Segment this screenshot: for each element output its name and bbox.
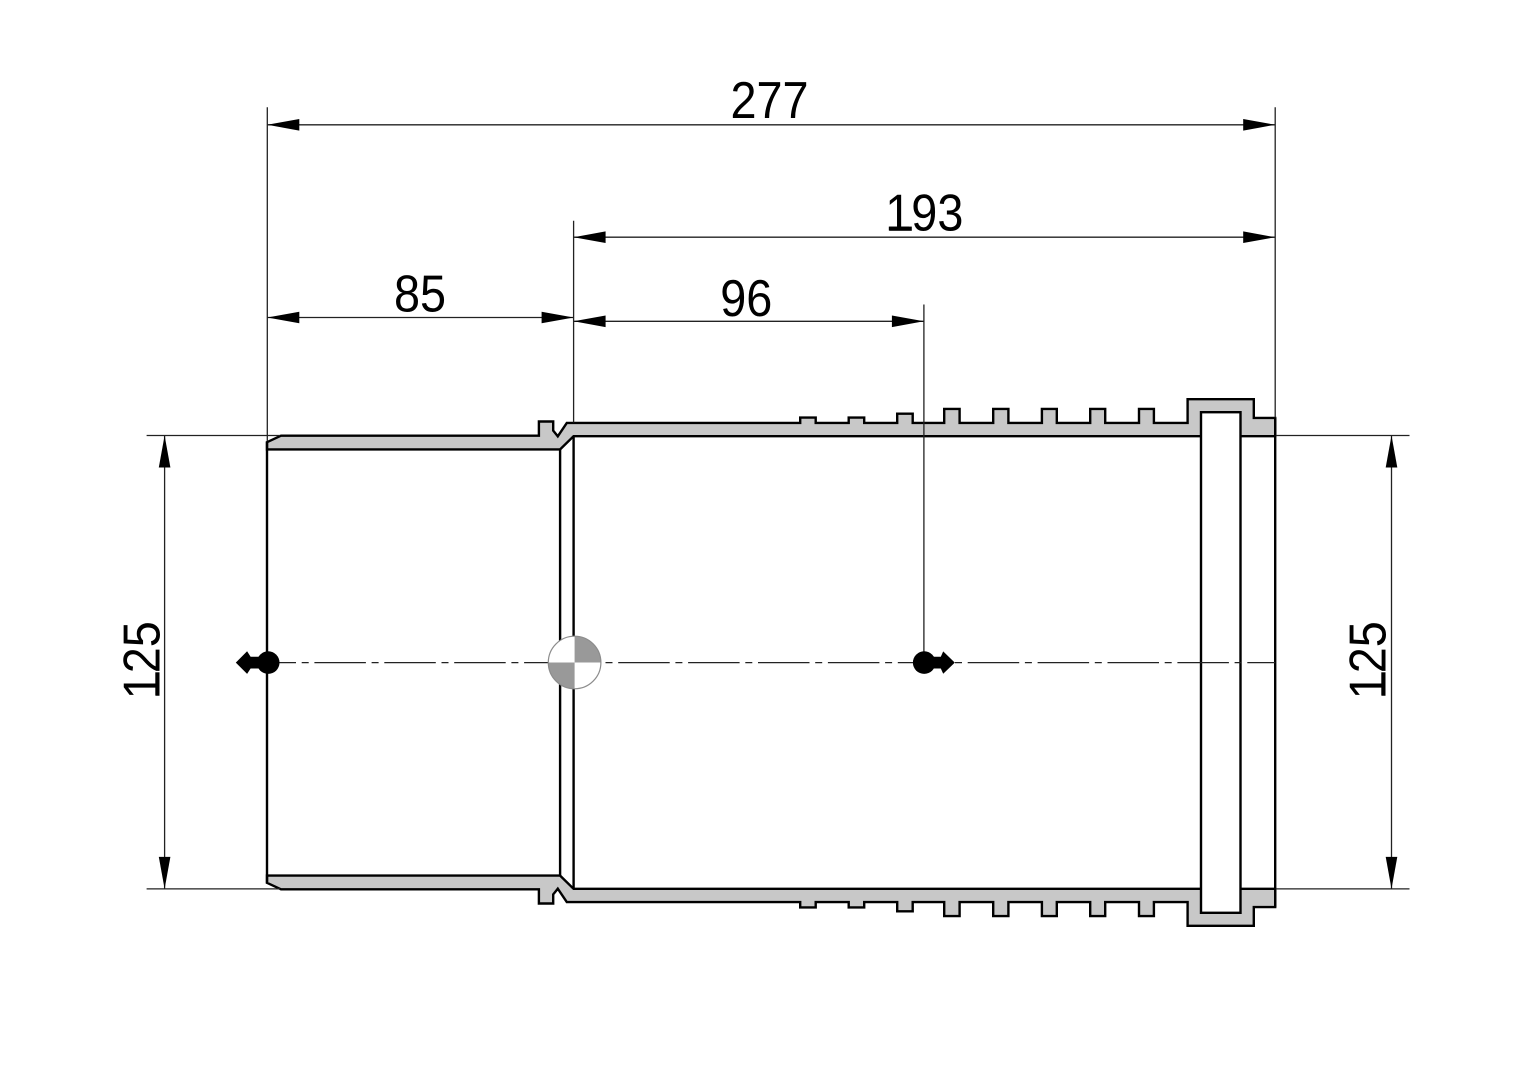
svg-text:85: 85 <box>394 265 446 323</box>
svg-text:96: 96 <box>720 270 772 328</box>
svg-text:277: 277 <box>730 72 808 130</box>
svg-text:193: 193 <box>885 184 963 242</box>
svg-text:125: 125 <box>113 621 171 699</box>
svg-text:125: 125 <box>1339 621 1397 699</box>
